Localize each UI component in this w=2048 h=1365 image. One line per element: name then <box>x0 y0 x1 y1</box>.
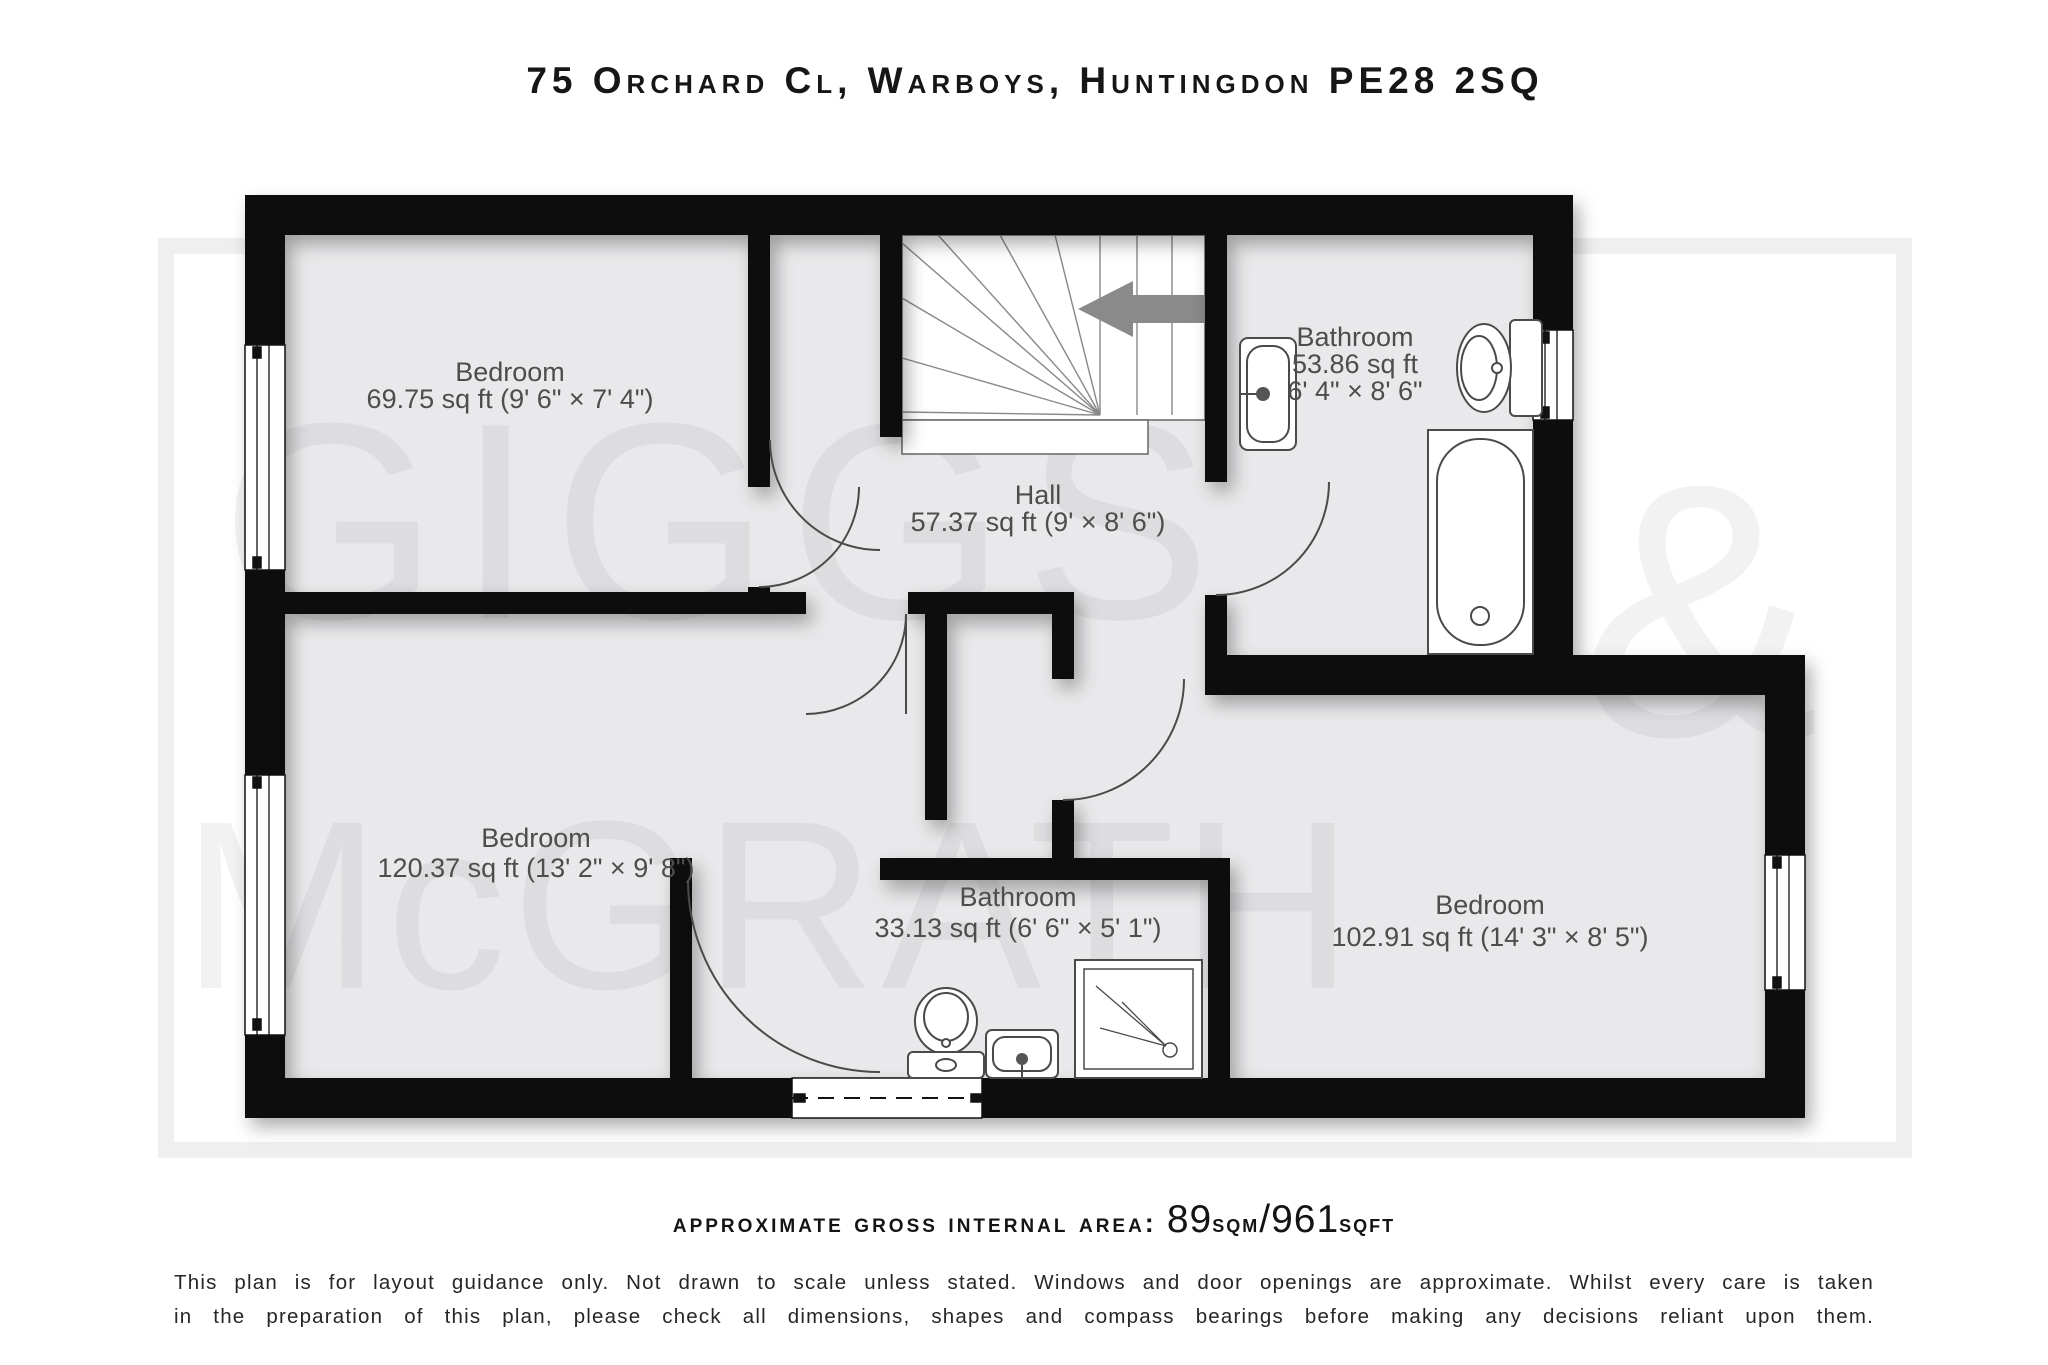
window <box>245 345 285 570</box>
floorplan-page: 75 Orchard Cl, Warboys, Huntingdon PE28 … <box>0 0 2048 1365</box>
shower-icon <box>1075 960 1202 1078</box>
room-size: 102.91 sq ft (14' 3" × 8' 5") <box>1332 922 1649 952</box>
toilet-icon <box>1457 320 1542 416</box>
area-sqm-unit: sqm <box>1212 1208 1259 1238</box>
area-separator: / <box>1259 1198 1271 1241</box>
bathtub-icon <box>1428 430 1533 654</box>
area-sqm-value: 89 <box>1167 1198 1212 1241</box>
sink-icon <box>986 1030 1058 1078</box>
window <box>1765 855 1805 990</box>
room-name: Bathroom <box>1296 322 1413 352</box>
room-name: Hall <box>1015 480 1062 510</box>
floor-plan: GIGGS & McGRATH <box>0 0 2048 1365</box>
window <box>245 775 285 1035</box>
room-size: 57.37 sq ft (9' × 8' 6") <box>911 507 1166 537</box>
area-sqft-value: 961 <box>1271 1198 1339 1241</box>
disclaimer: This plan is for layout guidance only. N… <box>174 1266 1874 1334</box>
room-size: 120.37 sq ft (13' 2" × 9' 8") <box>378 853 695 883</box>
room-size: 69.75 sq ft (9' 6" × 7' 4") <box>367 384 654 414</box>
room-dims: 6' 4" × 8' 6" <box>1287 376 1422 406</box>
area-summary: approximate gross internal area:89sqm/96… <box>0 1198 2048 1242</box>
window <box>792 1078 982 1118</box>
area-summary-label: approximate gross internal area: <box>673 1208 1157 1238</box>
disclaimer-line-2: in the preparation of this plan, please … <box>174 1300 1874 1334</box>
room-size: 53.86 sq ft <box>1292 349 1419 379</box>
room-name: Bathroom <box>959 882 1076 912</box>
stairs-landing <box>902 420 1148 454</box>
room-size: 33.13 sq ft (6' 6" × 5' 1") <box>875 913 1162 943</box>
room-name: Bedroom <box>1435 890 1545 920</box>
room-label-bathroom-1: Bathroom 53.86 sq ft 6' 4" × 8' 6" <box>1287 322 1422 406</box>
area-sqft-unit: sqft <box>1339 1208 1395 1238</box>
room-name: Bedroom <box>481 823 591 853</box>
room-name: Bedroom <box>455 357 565 387</box>
disclaimer-line-1: This plan is for layout guidance only. N… <box>174 1266 1874 1300</box>
